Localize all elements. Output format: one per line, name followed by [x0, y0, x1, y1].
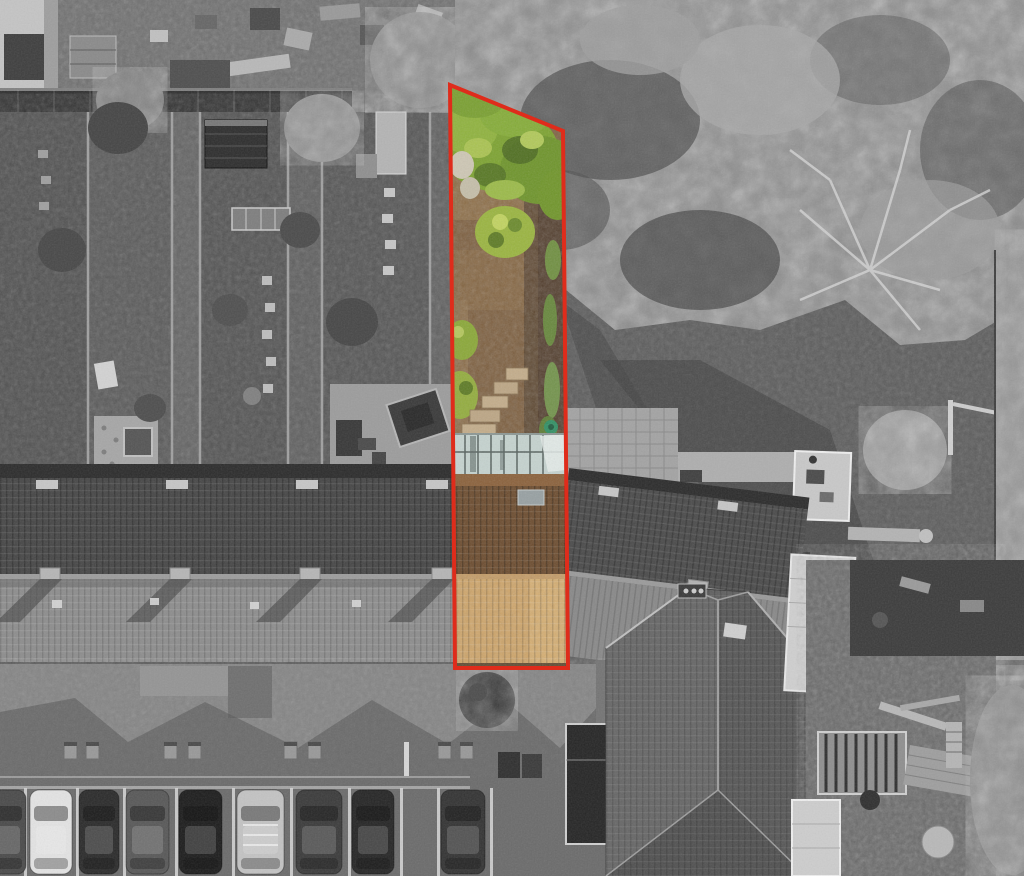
aerial-photo — [0, 0, 1024, 876]
aerial-photo-stage — [0, 0, 1024, 876]
film-grain — [0, 0, 1024, 876]
